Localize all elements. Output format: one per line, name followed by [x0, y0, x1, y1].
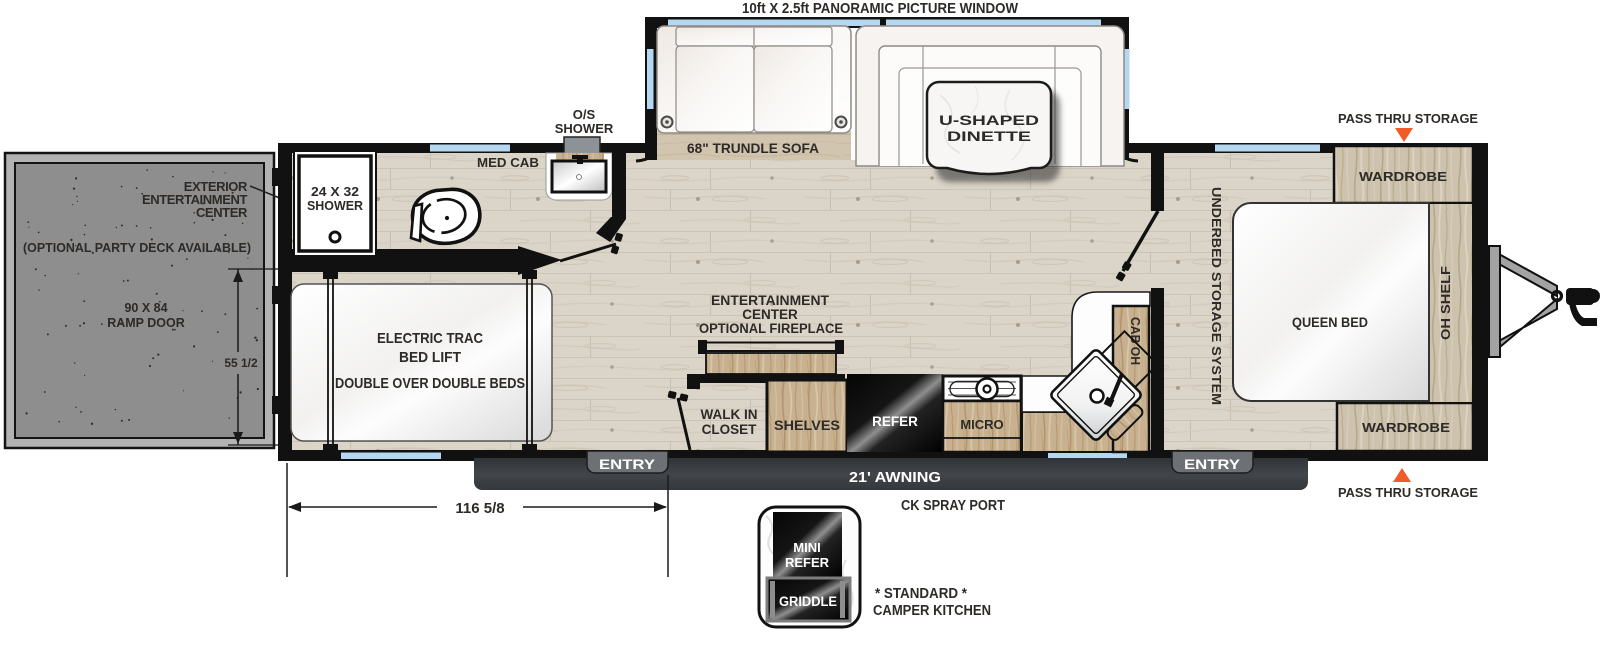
svg-text:55 1/2: 55 1/2	[224, 356, 258, 370]
svg-text:24 X 32: 24 X 32	[311, 185, 359, 199]
svg-text:ELECTRIC TRAC: ELECTRIC TRAC	[377, 330, 483, 347]
svg-text:(OPTIONAL PARTY DECK AVAILABLE: (OPTIONAL PARTY DECK AVAILABLE)	[23, 241, 251, 255]
svg-text:PASS THRU STORAGE: PASS THRU STORAGE	[1338, 485, 1478, 500]
svg-text:SHOWER: SHOWER	[307, 199, 363, 213]
svg-text:SHOWER: SHOWER	[555, 121, 614, 136]
svg-text:OH SHELF: OH SHELF	[1438, 266, 1453, 340]
svg-text:90 X 84: 90 X 84	[124, 301, 167, 315]
svg-text:MED CAB: MED CAB	[477, 155, 539, 170]
svg-text:GRIDDLE: GRIDDLE	[779, 594, 837, 609]
svg-text:MINI: MINI	[793, 540, 820, 555]
svg-text:BED LIFT: BED LIFT	[399, 349, 461, 366]
svg-text:CENTER: CENTER	[196, 205, 248, 220]
svg-text:* STANDARD *: * STANDARD *	[875, 586, 967, 602]
svg-text:MICRO: MICRO	[960, 417, 1003, 432]
svg-text:ENTRY: ENTRY	[1184, 456, 1241, 472]
svg-text:CAMPER KITCHEN: CAMPER KITCHEN	[873, 603, 991, 619]
svg-text:68" TRUNDLE SOFA: 68" TRUNDLE SOFA	[687, 140, 819, 156]
svg-text:WARDROBE: WARDROBE	[1362, 420, 1450, 435]
svg-text:QUEEN BED: QUEEN BED	[1292, 315, 1368, 330]
svg-text:RAMP DOOR: RAMP DOOR	[107, 316, 185, 330]
svg-text:CK SPRAY PORT: CK SPRAY PORT	[901, 498, 1005, 514]
svg-text:CENTER: CENTER	[742, 307, 798, 322]
svg-text:WARDROBE: WARDROBE	[1359, 169, 1447, 184]
svg-text:REFER: REFER	[872, 414, 918, 429]
svg-text:ENTRY: ENTRY	[599, 456, 656, 472]
svg-text:REFER: REFER	[785, 555, 830, 570]
svg-text:CLOSET: CLOSET	[702, 422, 758, 437]
svg-text:OPTIONAL FIREPLACE: OPTIONAL FIREPLACE	[699, 321, 843, 336]
svg-text:ENTERTAINMENT: ENTERTAINMENT	[711, 293, 830, 308]
svg-text:O/S: O/S	[573, 107, 596, 122]
svg-text:UNDERBED STORAGE SYSTEM: UNDERBED STORAGE SYSTEM	[1209, 187, 1223, 405]
svg-text:DOUBLE OVER DOUBLE BEDS: DOUBLE OVER DOUBLE BEDS	[335, 375, 525, 392]
svg-text:DINETTE: DINETTE	[947, 128, 1031, 144]
svg-text:10ft X 2.5ft PANORAMIC PICTURE: 10ft X 2.5ft PANORAMIC PICTURE WINDOW	[742, 0, 1019, 17]
svg-text:U-SHAPED: U-SHAPED	[939, 112, 1039, 128]
svg-text:SHELVES: SHELVES	[774, 418, 840, 433]
svg-text:116 5/8: 116 5/8	[455, 500, 504, 517]
svg-text:PASS THRU STORAGE: PASS THRU STORAGE	[1338, 111, 1478, 126]
svg-text:WALK IN: WALK IN	[701, 407, 758, 422]
svg-text:21' AWNING: 21' AWNING	[849, 470, 941, 486]
